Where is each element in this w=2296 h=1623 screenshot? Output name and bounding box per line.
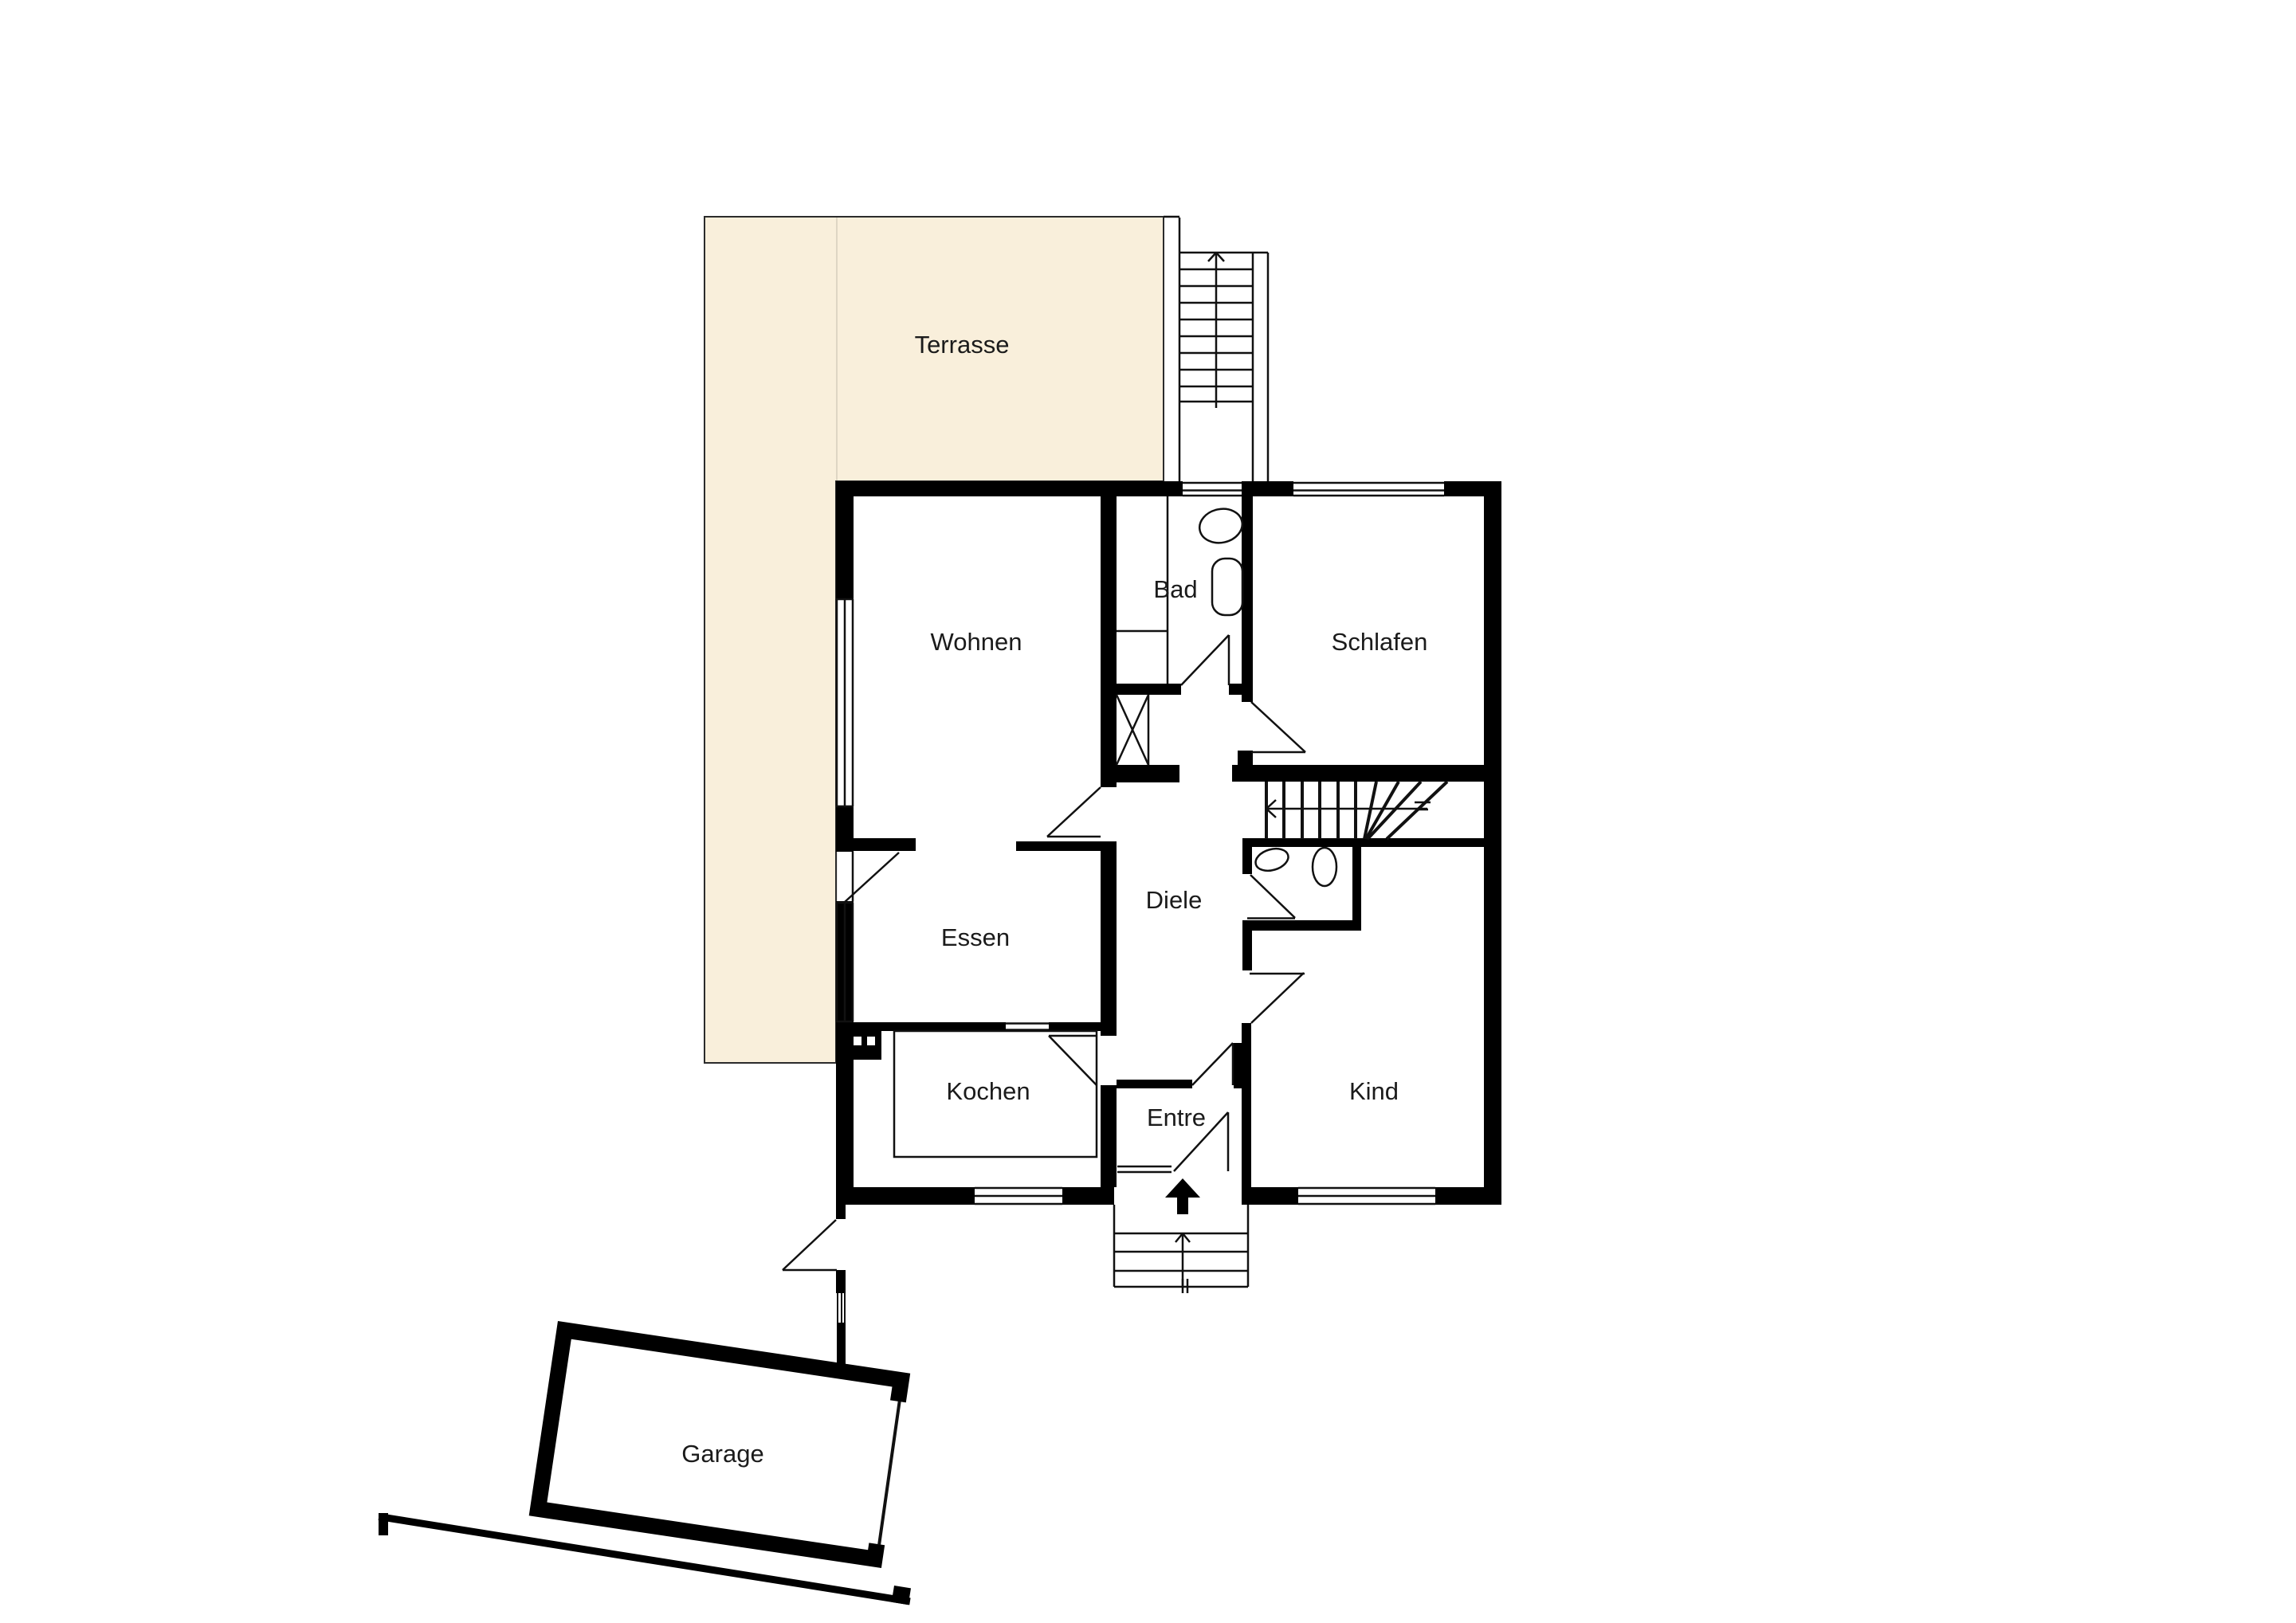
svg-text:Kochen: Kochen [946, 1077, 1030, 1105]
svg-text:Bad: Bad [1153, 575, 1197, 603]
svg-text:Diele: Diele [1146, 886, 1203, 914]
svg-text:Essen: Essen [941, 923, 1010, 951]
svg-text:Garage: Garage [681, 1440, 763, 1468]
svg-text:Wohnen: Wohnen [931, 628, 1022, 656]
svg-text:Entre: Entre [1147, 1104, 1206, 1131]
svg-text:Kind: Kind [1349, 1077, 1399, 1105]
svg-text:Terrasse: Terrasse [915, 331, 1010, 359]
svg-text:Schlafen: Schlafen [1332, 628, 1428, 656]
